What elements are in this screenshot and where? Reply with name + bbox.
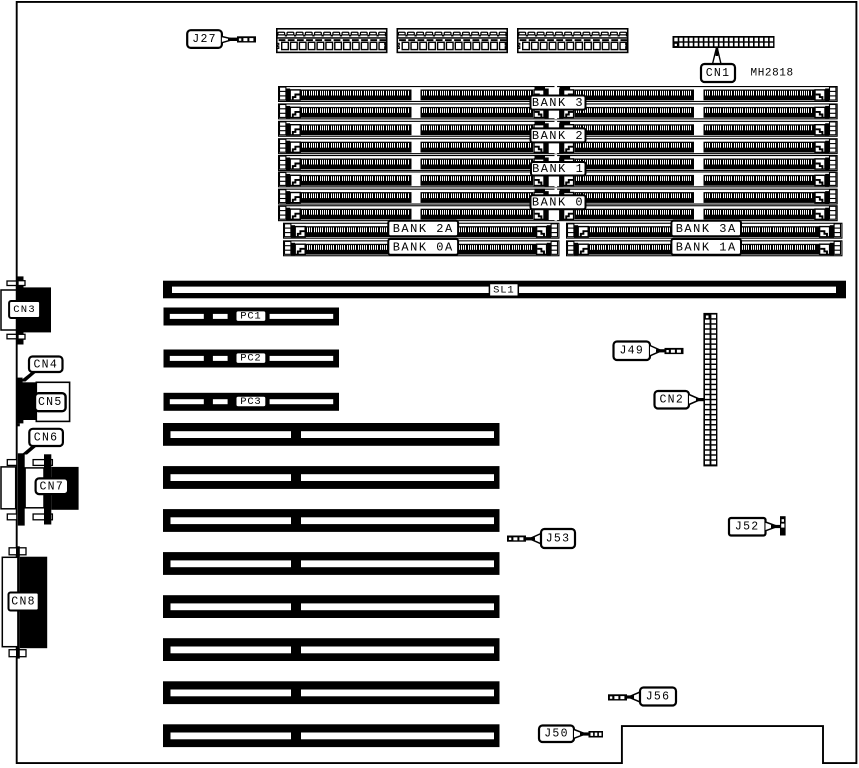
svg-text:BANK 0: BANK 0	[532, 196, 584, 210]
svg-text:BANK 3: BANK 3	[532, 96, 584, 110]
svg-text:BANK 2: BANK 2	[532, 129, 584, 143]
svg-text:BANK 1A: BANK 1A	[676, 240, 737, 254]
svg-text:J27: J27	[192, 33, 217, 46]
svg-text:J53: J53	[546, 533, 571, 546]
svg-text:J52: J52	[735, 521, 760, 534]
svg-text:BANK 0A: BANK 0A	[393, 240, 454, 254]
svg-text:SL1: SL1	[493, 284, 514, 296]
svg-text:CN3: CN3	[13, 304, 36, 316]
svg-text:PC2: PC2	[240, 353, 261, 365]
svg-text:CN8: CN8	[11, 596, 36, 609]
svg-text:PC1: PC1	[240, 311, 261, 323]
svg-text:CN2: CN2	[659, 394, 684, 407]
svg-text:BANK 1: BANK 1	[532, 162, 584, 176]
svg-text:CN6: CN6	[34, 431, 59, 444]
svg-text:CN5: CN5	[38, 396, 63, 409]
svg-text:CN1: CN1	[706, 67, 731, 80]
svg-text:BANK 3A: BANK 3A	[676, 222, 737, 236]
svg-text:J49: J49	[619, 345, 644, 358]
svg-text:BANK 2A: BANK 2A	[393, 222, 454, 236]
svg-text:MH2818: MH2818	[751, 68, 794, 80]
svg-text:PC3: PC3	[240, 396, 261, 408]
svg-text:J56: J56	[646, 691, 671, 704]
svg-text:CN7: CN7	[39, 480, 64, 493]
svg-text:J50: J50	[544, 728, 569, 741]
svg-text:CN4: CN4	[33, 358, 58, 371]
